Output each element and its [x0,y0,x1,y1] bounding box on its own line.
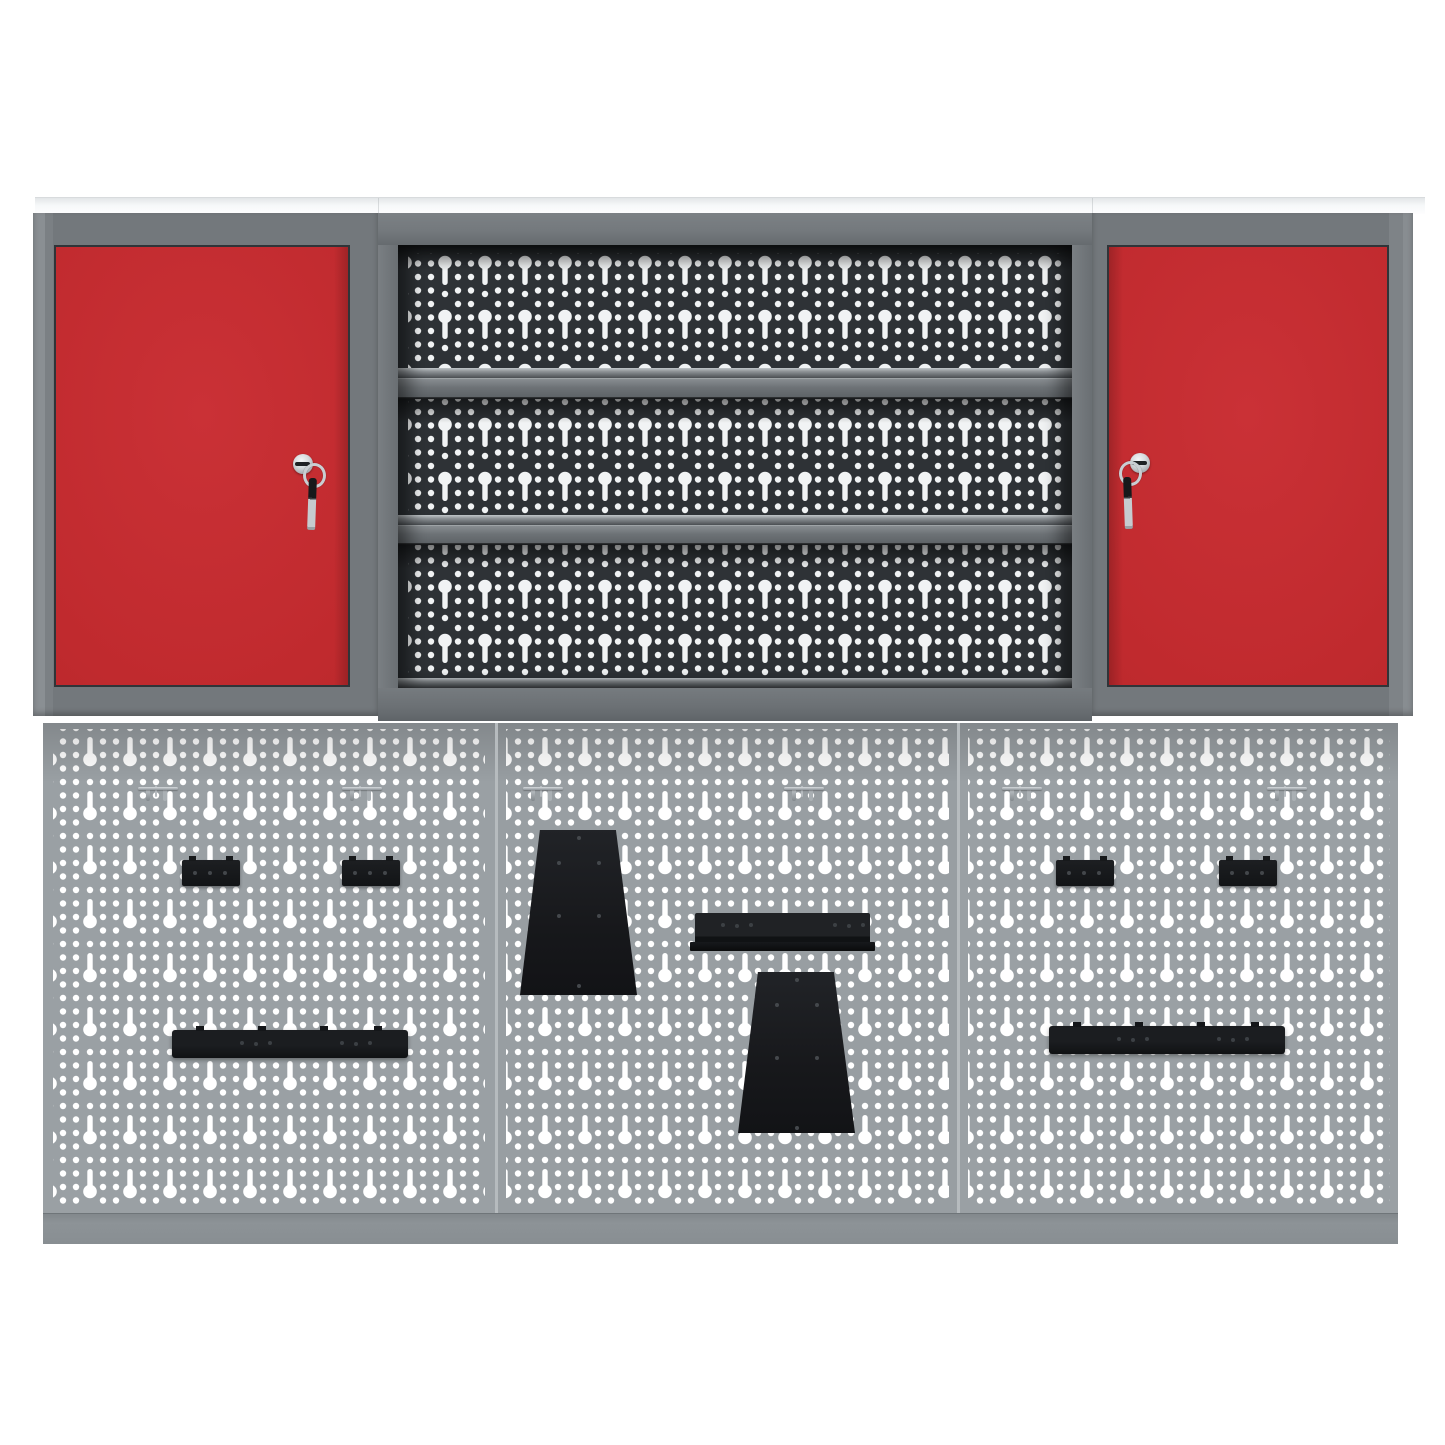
wall-hook-5 [1000,785,1044,805]
trapezoid-plate-1 [520,830,637,995]
mount-bracket-3 [1056,860,1114,886]
right-cabinet [1092,213,1413,716]
shelf-unit-right-frame [1072,245,1092,720]
wall-hook-3 [521,785,565,805]
shelf-front-2 [398,525,1072,545]
shelf-unit-interior [398,245,1072,688]
upper-pegboard-panel [398,245,1072,688]
top-panel-seam [1092,198,1093,214]
shelf-unit-bottom-band [378,688,1092,721]
bottom-rail [43,1213,1398,1244]
shelf-surface-1 [398,368,1072,378]
wall-hook-6 [1265,785,1309,805]
lower-pegboard-wall [43,723,1398,1213]
shelf-unit-top-band [378,213,1092,246]
tool-rail [695,913,870,951]
wall-hook-1 [136,785,180,805]
key-icon [307,478,317,530]
product-photo-stage [0,0,1445,1445]
door-shadow [334,247,348,685]
center-shelf-unit [378,213,1092,721]
pegboard-accessories-layer [43,723,1398,1213]
left-cabinet [33,213,378,716]
mount-bracket-4 [1219,860,1277,886]
top-panel-seam [378,198,379,214]
right-cabinet-door [1107,245,1389,687]
shelf-unit-left-frame [378,245,398,720]
wall-hook-4 [782,785,826,805]
shelf-bottom-surface [398,678,1072,688]
trapezoid-plate-2 [738,972,855,1133]
shelf-front-1 [398,378,1072,399]
left-cabinet-door [54,245,350,687]
top-cover-panel [35,197,1425,214]
shelf-surface-2 [398,515,1072,525]
wall-hook-2 [340,785,384,805]
mount-bracket-2 [342,860,400,886]
long-bracket-bar-2 [1049,1026,1285,1054]
mount-bracket-1 [182,860,240,886]
long-bracket-bar-1 [172,1030,408,1058]
